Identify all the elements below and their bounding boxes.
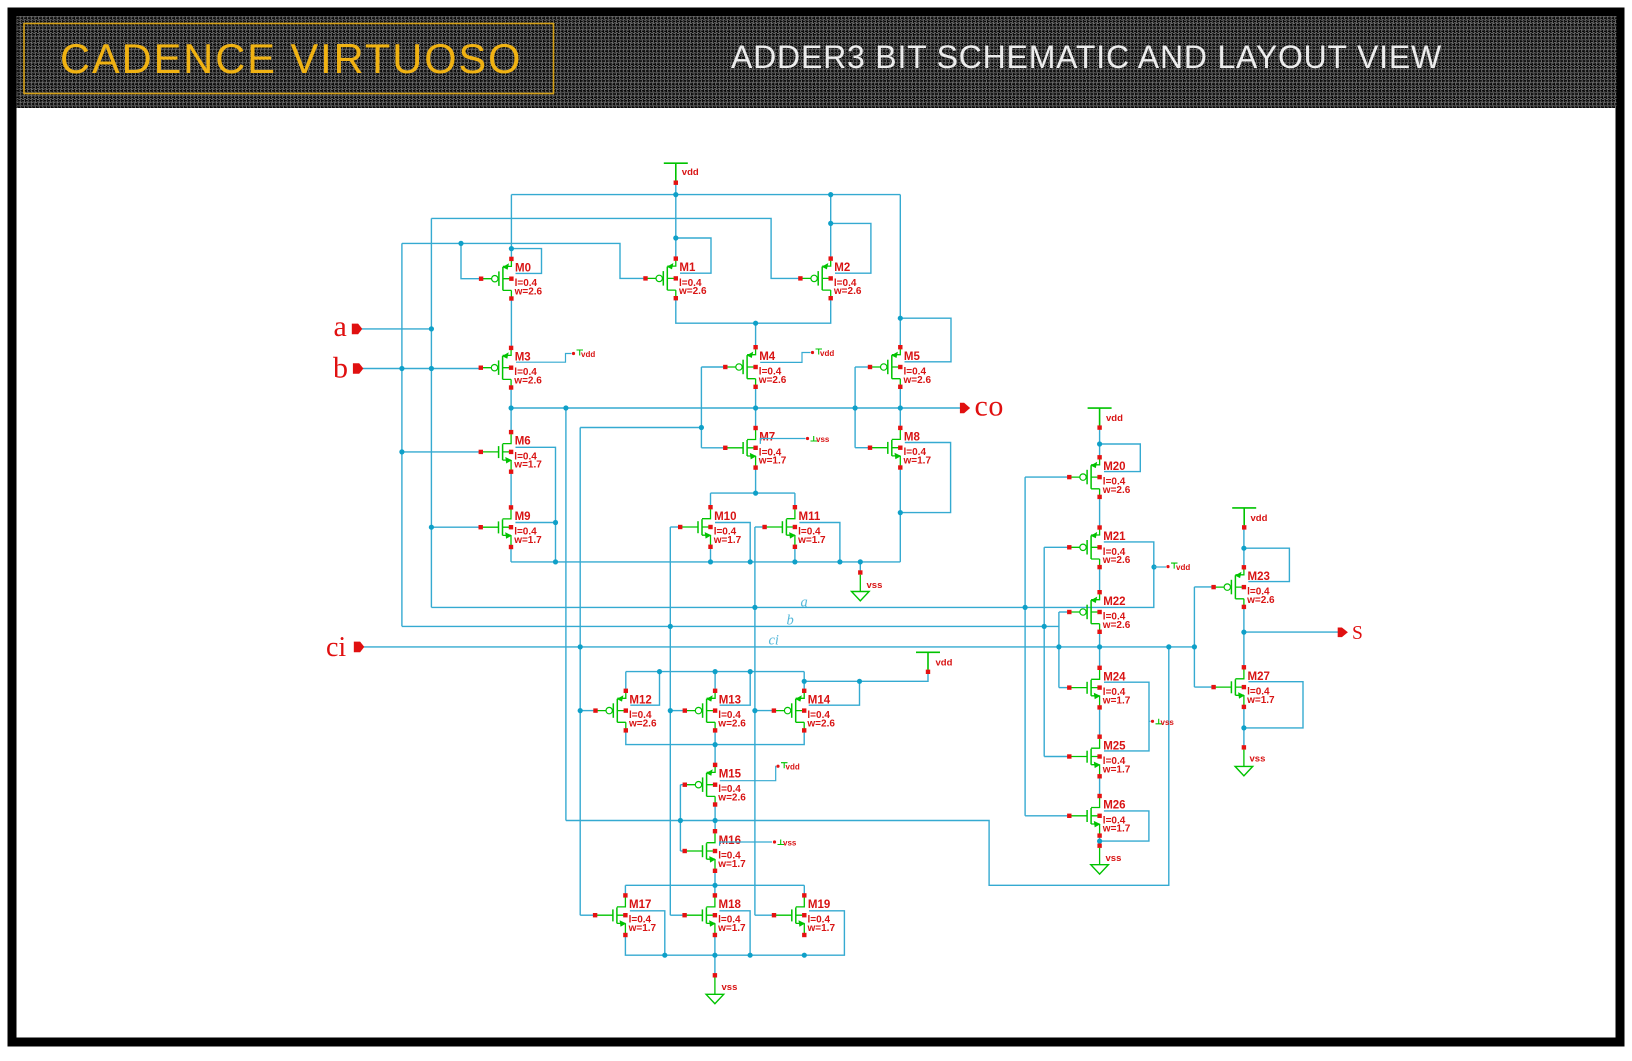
svg-text:w=1.7: w=1.7 — [903, 456, 932, 467]
svg-text:w=1.7: w=1.7 — [717, 859, 746, 870]
svg-text:M24: M24 — [1103, 671, 1126, 683]
svg-text:M16: M16 — [719, 835, 741, 847]
svg-text:w=2.6: w=2.6 — [513, 376, 542, 387]
svg-text:w=1.7: w=1.7 — [797, 535, 826, 546]
svg-text:w=2.6: w=2.6 — [806, 718, 835, 729]
svg-text:ci: ci — [769, 633, 779, 649]
svg-text:w=1.7: w=1.7 — [628, 923, 657, 934]
svg-text:vss: vss — [783, 839, 797, 848]
svg-text:w=1.7: w=1.7 — [1246, 695, 1275, 706]
svg-text:w=2.6: w=2.6 — [903, 375, 932, 386]
svg-text:vdd: vdd — [786, 763, 800, 772]
svg-text:w=2.6: w=2.6 — [1102, 620, 1131, 631]
svg-text:M11: M11 — [799, 511, 821, 523]
svg-text:w=1.7: w=1.7 — [758, 456, 787, 467]
svg-text:M0: M0 — [515, 263, 531, 275]
svg-text:CADENCE VIRTUOSO: CADENCE VIRTUOSO — [60, 35, 522, 82]
svg-text:M8: M8 — [904, 432, 921, 444]
svg-text:w=1.7: w=1.7 — [1102, 824, 1131, 835]
svg-text:M9: M9 — [515, 511, 531, 523]
svg-text:vdd: vdd — [1176, 563, 1190, 572]
svg-text:vdd: vdd — [1251, 513, 1268, 524]
svg-text:M19: M19 — [808, 899, 830, 911]
svg-text:b: b — [787, 613, 794, 629]
svg-text:vss: vss — [722, 982, 738, 993]
svg-text:M2: M2 — [834, 262, 850, 274]
svg-text:M15: M15 — [719, 769, 742, 781]
svg-text:w=2.6: w=2.6 — [514, 287, 543, 298]
svg-text:w=2.6: w=2.6 — [628, 718, 657, 729]
svg-text:M7: M7 — [759, 432, 775, 444]
svg-text:w=2.6: w=2.6 — [717, 718, 746, 729]
svg-text:w=2.6: w=2.6 — [1102, 485, 1131, 496]
svg-text:M22: M22 — [1103, 596, 1125, 608]
svg-text:w=2.6: w=2.6 — [717, 793, 746, 804]
svg-text:w=1.7: w=1.7 — [513, 535, 542, 546]
svg-text:w=2.6: w=2.6 — [1246, 595, 1275, 606]
svg-text:vdd: vdd — [682, 167, 699, 178]
svg-text:vdd: vdd — [1106, 413, 1123, 424]
svg-text:M25: M25 — [1103, 740, 1126, 752]
svg-text:w=2.6: w=2.6 — [758, 375, 787, 386]
svg-text:w=2.6: w=2.6 — [678, 286, 707, 297]
svg-text:vss: vss — [867, 580, 883, 591]
svg-text:vss: vss — [1161, 718, 1175, 727]
svg-text:M4: M4 — [759, 351, 776, 363]
svg-text:co: co — [975, 390, 1004, 423]
svg-text:w=1.7: w=1.7 — [1102, 764, 1131, 775]
svg-text:M6: M6 — [515, 436, 531, 448]
svg-text:w=1.7: w=1.7 — [513, 460, 542, 471]
svg-text:w=1.7: w=1.7 — [807, 923, 836, 934]
svg-text:M13: M13 — [719, 694, 741, 706]
svg-text:M5: M5 — [904, 351, 921, 363]
svg-text:vss: vss — [1250, 754, 1266, 765]
svg-text:vdd: vdd — [936, 658, 953, 669]
svg-text:vdd: vdd — [581, 350, 595, 359]
svg-text:w=1.7: w=1.7 — [713, 535, 742, 546]
svg-text:w=1.7: w=1.7 — [717, 923, 746, 934]
svg-text:M23: M23 — [1248, 571, 1270, 583]
svg-text:vss: vss — [816, 435, 830, 444]
svg-text:a: a — [334, 310, 347, 343]
svg-text:b: b — [333, 352, 348, 385]
svg-text:M10: M10 — [714, 511, 736, 523]
svg-text:w=1.7: w=1.7 — [1102, 695, 1131, 706]
svg-text:vdd: vdd — [820, 349, 834, 358]
svg-text:M1: M1 — [679, 262, 696, 274]
svg-text:ADDER3 BIT SCHEMATIC AND LAYOU: ADDER3 BIT SCHEMATIC AND LAYOUT VIEW — [731, 39, 1442, 75]
svg-text:M27: M27 — [1248, 671, 1270, 683]
svg-text:M18: M18 — [719, 899, 742, 911]
svg-text:M14: M14 — [808, 694, 831, 706]
svg-text:w=2.6: w=2.6 — [833, 286, 862, 297]
svg-text:M20: M20 — [1103, 461, 1125, 473]
svg-text:M26: M26 — [1103, 800, 1125, 812]
svg-text:M17: M17 — [629, 899, 651, 911]
svg-text:M12: M12 — [629, 694, 651, 706]
svg-text:ci: ci — [326, 632, 346, 663]
svg-text:S: S — [1352, 623, 1363, 644]
svg-text:vss: vss — [1106, 853, 1122, 864]
svg-text:M21: M21 — [1103, 531, 1126, 543]
svg-text:w=2.6: w=2.6 — [1102, 555, 1131, 566]
svg-text:a: a — [801, 595, 808, 611]
